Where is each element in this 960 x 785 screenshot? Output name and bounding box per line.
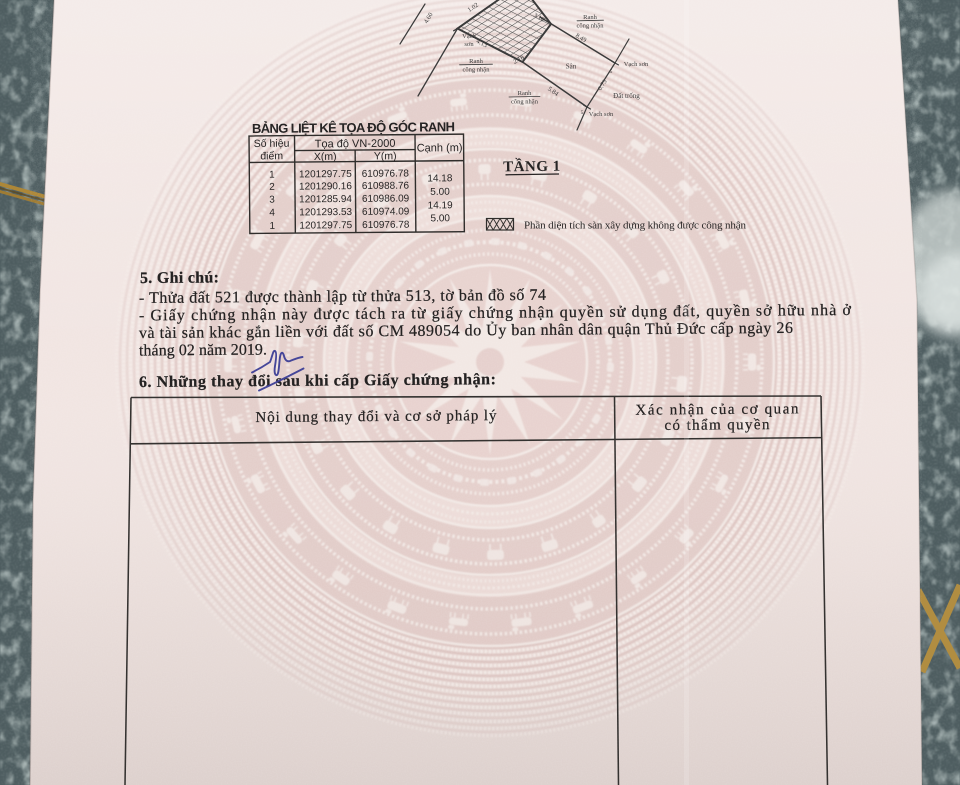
svg-text:610976.78: 610976.78 [362,220,410,231]
svg-text:tháng 02 năm 2019.: tháng 02 năm 2019. [139,341,267,359]
svg-text:0.73: 0.73 [597,79,609,92]
svg-text:5: 5 [610,69,613,75]
svg-text:Xác nhận của cơ quan: Xác nhận của cơ quan [635,401,799,418]
svg-text:Cạnh (m): Cạnh (m) [417,142,463,154]
svg-text:công nhận: công nhận [463,67,491,74]
svg-text:Vạch: Vạch [462,33,476,40]
svg-text:14.19: 14.19 [428,200,454,211]
svg-text:610974.09: 610974.09 [362,206,410,217]
svg-text:1: 1 [269,170,275,181]
svg-text:5.00: 5.00 [430,213,450,224]
svg-text:Sân: Sân [566,63,577,71]
svg-text:5: 5 [581,110,584,116]
svg-text:4.60: 4.60 [423,12,435,25]
svg-text:5.00: 5.00 [430,187,450,198]
svg-text:6. Những thay đổi sau khi cấp: 6. Những thay đổi sau khi cấp Giấy chứng… [139,371,496,391]
svg-text:Ranh: Ranh [518,90,532,97]
svg-text:- Thửa đất 521 được thành lập: - Thửa đất 521 được thành lập từ thửa 51… [139,287,546,307]
svg-text:Y(m): Y(m) [374,150,397,162]
svg-text:3: 3 [269,195,275,206]
svg-text:4: 4 [269,208,275,219]
svg-text:TẦNG 1: TẦNG 1 [503,158,561,176]
svg-text:Đất trống: Đất trống [613,92,640,100]
svg-text:1.02: 1.02 [467,2,480,14]
svg-text:Số hiệu: Số hiệu [254,138,290,150]
svg-text:Vạch sơn: Vạch sơn [589,111,614,118]
svg-text:có thẩm quyền: có thẩm quyền [664,417,770,434]
svg-text:1: 1 [269,221,275,232]
svg-text:1201293.53: 1201293.53 [299,207,352,218]
svg-text:sơn: sơn [464,41,474,48]
svg-text:X(m): X(m) [314,151,337,163]
svg-text:2: 2 [269,182,275,193]
svg-text:610976.78: 610976.78 [362,168,410,179]
svg-text:Phần diện tích sàn xây dựng kh: Phần diện tích sàn xây dựng không được c… [524,220,747,232]
svg-text:công nhận: công nhận [577,23,605,30]
svg-text:Nội dung thay đổi và cơ sở phá: Nội dung thay đổi và cơ sở pháp lý [255,408,497,426]
svg-text:BẢNG LIỆT KÊ TỌA ĐỘ GÓC RANH: BẢNG LIỆT KÊ TỌA ĐỘ GÓC RANH [252,119,455,136]
svg-text:610986.09: 610986.09 [362,193,410,204]
svg-text:1201297.75: 1201297.75 [299,169,352,180]
svg-text:1201285.94: 1201285.94 [299,194,352,205]
svg-text:14.18: 14.18 [427,173,453,184]
svg-text:610988.76: 610988.76 [362,181,410,192]
svg-text:5. Ghi chú:: 5. Ghi chú: [140,269,219,287]
svg-text:Ranh: Ranh [583,14,597,21]
svg-text:1201297.75: 1201297.75 [299,220,352,231]
svg-text:Vạch sơn: Vạch sơn [624,61,649,68]
svg-text:Ranh: Ranh [469,58,483,65]
svg-text:công nhận: công nhận [511,99,539,106]
svg-text:Tọa độ VN-2000: Tọa độ VN-2000 [315,138,396,151]
svg-text:1201290.16: 1201290.16 [299,181,352,192]
svg-text:điểm: điểm [260,150,283,162]
